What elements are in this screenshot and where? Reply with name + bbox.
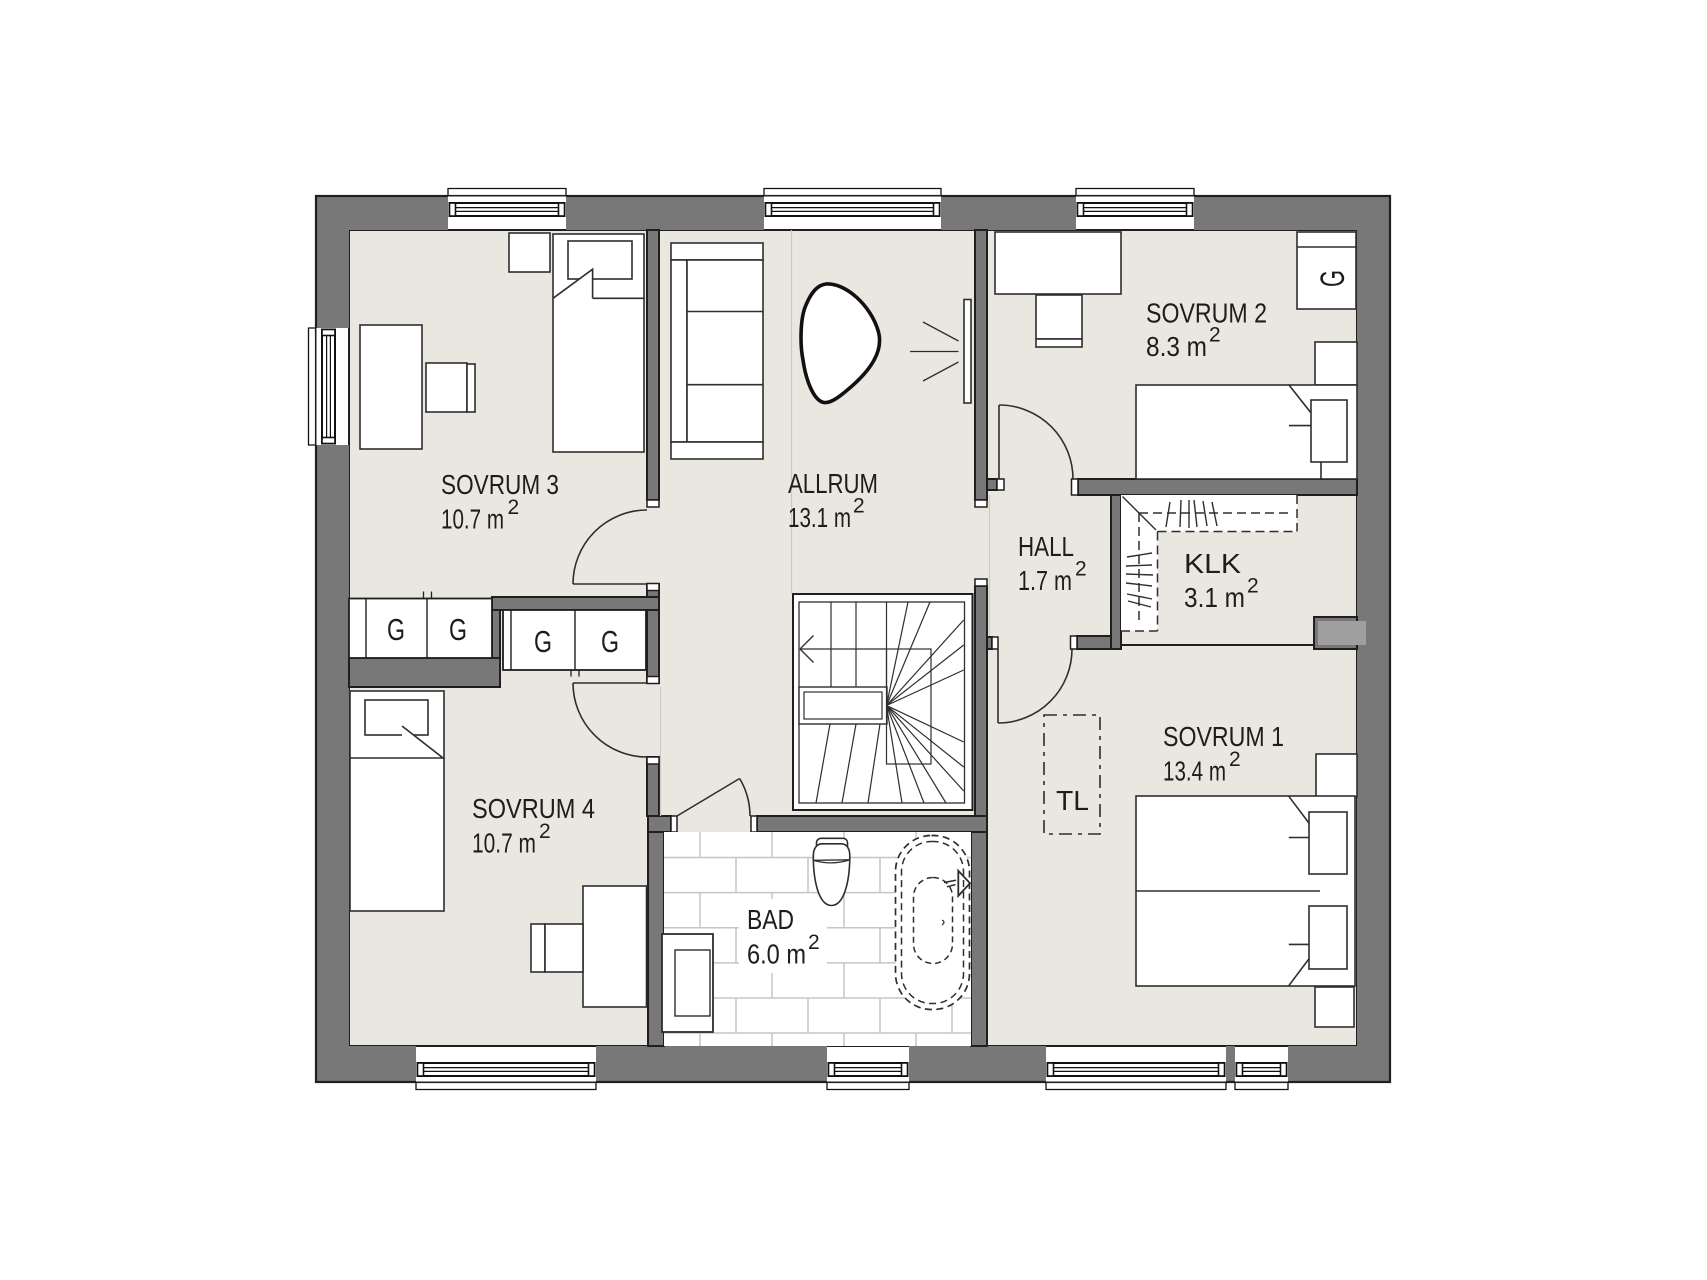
- svg-text:G: G: [449, 612, 467, 647]
- svg-text:13.1 m: 13.1 m: [788, 502, 851, 533]
- svg-text:1.7 m: 1.7 m: [1018, 565, 1072, 596]
- svg-text:SOVRUM 1: SOVRUM 1: [1163, 721, 1284, 752]
- svg-text:2: 2: [808, 931, 820, 954]
- svg-text:SOVRUM 4: SOVRUM 4: [472, 793, 595, 824]
- svg-text:8.3 m: 8.3 m: [1146, 331, 1207, 362]
- svg-text:G: G: [1314, 270, 1352, 287]
- svg-text:2: 2: [853, 495, 865, 518]
- svg-text:BAD: BAD: [747, 904, 794, 935]
- svg-text:3.1 m: 3.1 m: [1184, 582, 1245, 613]
- svg-text:SOVRUM 2: SOVRUM 2: [1146, 298, 1267, 329]
- svg-text:2: 2: [508, 496, 520, 519]
- svg-text:SOVRUM 3: SOVRUM 3: [441, 469, 559, 500]
- svg-text:2: 2: [1209, 324, 1221, 347]
- svg-text:G: G: [601, 624, 619, 659]
- svg-text:2: 2: [1247, 575, 1259, 598]
- svg-text:2: 2: [1229, 748, 1241, 771]
- svg-text:KLK: KLK: [1184, 548, 1242, 579]
- svg-text:2: 2: [539, 820, 551, 843]
- svg-text:HALL: HALL: [1018, 531, 1074, 562]
- svg-text:10.7 m: 10.7 m: [472, 828, 536, 859]
- svg-text:6.0 m: 6.0 m: [747, 939, 806, 970]
- svg-text:G: G: [534, 624, 552, 659]
- svg-text:13.4 m: 13.4 m: [1163, 756, 1226, 787]
- svg-text:G: G: [387, 612, 405, 647]
- svg-text:10.7 m: 10.7 m: [441, 504, 504, 535]
- svg-text:TL: TL: [1056, 785, 1089, 816]
- svg-text:2: 2: [1075, 558, 1087, 581]
